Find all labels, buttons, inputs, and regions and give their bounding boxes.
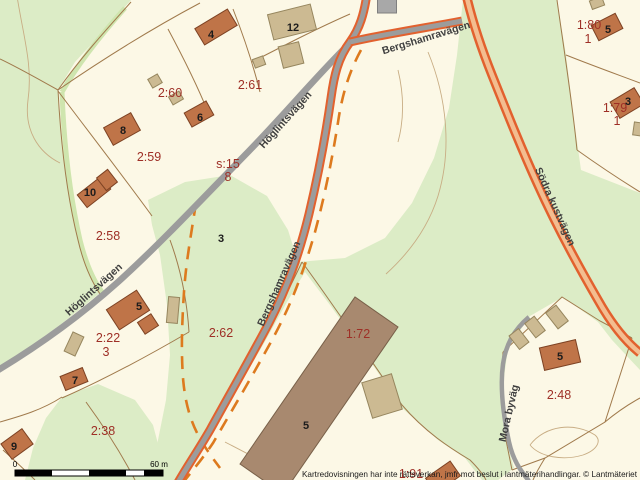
building-number-label: 5: [303, 420, 309, 432]
building-number-label: 7: [72, 375, 78, 387]
scale-bar-segment: [89, 470, 126, 476]
building-number-label: 5: [605, 24, 611, 36]
building-gray: [378, 0, 397, 13]
parcel-number-label: 1:72: [346, 327, 370, 341]
building-number-label: 5: [557, 351, 563, 363]
building-number-label: 12: [287, 22, 299, 34]
building-number-label: 5: [136, 301, 142, 313]
parcel-number-label: 2:38: [91, 424, 115, 438]
parcel-number-label: 2:60: [158, 86, 182, 100]
building-number-label: 6: [197, 112, 203, 124]
parcel-number-label: 2:61: [238, 78, 262, 92]
building-number-label: 4: [208, 29, 215, 41]
scale-bar-segment: [144, 470, 163, 476]
parcel-number-label: 1: [614, 114, 621, 128]
building-tan: [278, 42, 304, 68]
building-number-label: 3: [625, 96, 631, 108]
parcel-number-label: 1: [585, 32, 592, 46]
parcel-number-label: 2:58: [96, 229, 120, 243]
parcel-number-label: 1:79: [603, 101, 627, 115]
parcel-number-label: 3: [103, 345, 110, 359]
map-canvas: HöglintsvägenHöglintsvägenBergshamraväge…: [0, 0, 640, 480]
building-number-label: 10: [84, 187, 96, 199]
parcel-number-label: 2:62: [209, 326, 233, 340]
parcel-number-label: 1:80: [577, 18, 601, 32]
building-tan: [633, 122, 640, 136]
building-number-label: 9: [11, 441, 17, 453]
scale-bar-start-label: 0: [13, 460, 18, 469]
building-number-label: 8: [120, 125, 126, 137]
scale-bar-end-label: 60 m: [150, 460, 168, 469]
parcel-number-label: 2:22: [96, 331, 120, 345]
parcel-number-label: 2:48: [547, 388, 571, 402]
parcel-number-label: 2:59: [137, 150, 161, 164]
building-tan: [166, 297, 179, 324]
scale-bar-segment: [15, 470, 52, 476]
building-number-label: 3: [218, 233, 224, 245]
map-viewport[interactable]: HöglintsvägenHöglintsvägenBergshamraväge…: [0, 0, 640, 480]
copyright-text: Kartredovisningen har inte rättsverkan, …: [302, 470, 638, 479]
parcel-number-label: 8: [225, 170, 232, 184]
parcel-number-label: s:15: [216, 157, 240, 171]
